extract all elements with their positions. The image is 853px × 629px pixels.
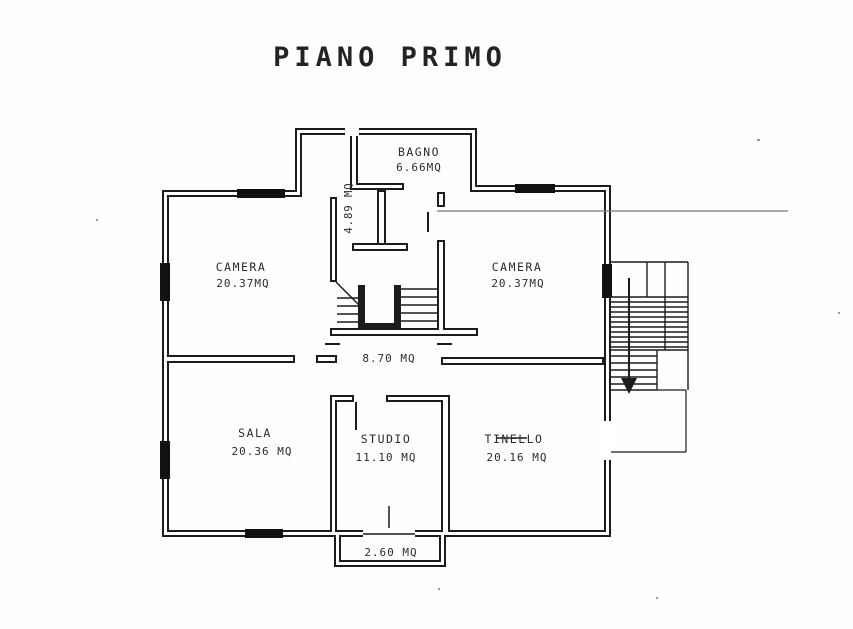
- room-area-camera-left: 20.37MQ: [216, 277, 269, 290]
- floor-plan-svg: PIANO PRIMO BAGNO 6.66MQ 4.89 MQ CAMERA …: [0, 0, 853, 629]
- room-label-camera-right: CAMERA: [492, 260, 543, 274]
- room-area-studio: 11.10 MQ: [356, 451, 417, 464]
- room-area-corridoio: 4.89 MQ: [343, 182, 355, 233]
- room-area-tinello: 20.16 MQ: [487, 451, 548, 464]
- room-label-sala: SALA: [238, 426, 272, 440]
- room-area-bagno: 6.66MQ: [396, 161, 442, 174]
- room-label-bagno: BAGNO: [398, 145, 440, 159]
- scanned-floorplan-page: { "title": "PIANO PRIMO", "rooms": { "ba…: [0, 0, 853, 629]
- room-label-studio: STUDIO: [361, 432, 412, 446]
- room-area-hall: 8.70 MQ: [362, 352, 415, 365]
- room-label-tinello: TINELLO: [485, 432, 544, 446]
- page-title: PIANO PRIMO: [273, 42, 507, 73]
- room-area-camera-right: 20.37MQ: [491, 277, 544, 290]
- room-area-sala: 20.36 MQ: [232, 445, 293, 458]
- room-area-balcone: 2.60 MQ: [364, 546, 417, 559]
- room-label-camera-left: CAMERA: [216, 260, 267, 274]
